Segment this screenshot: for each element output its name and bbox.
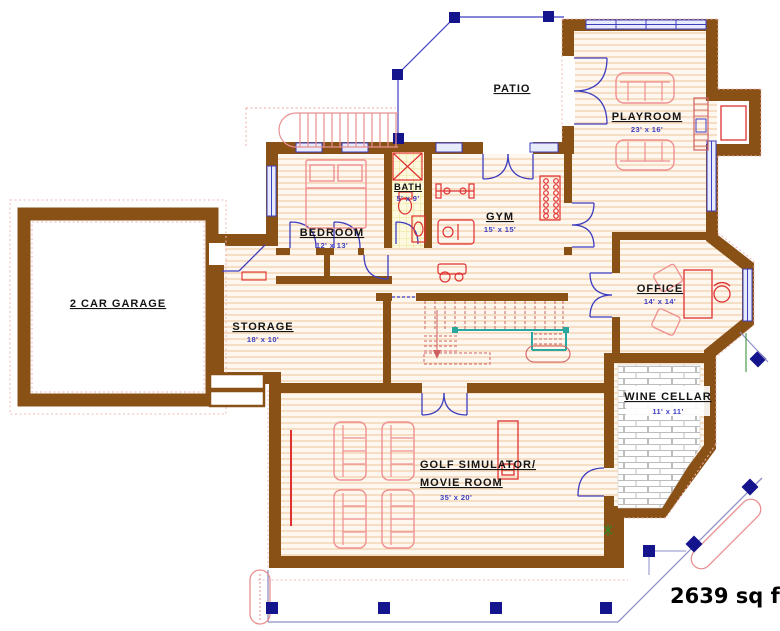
deck-post-diamond [742,479,759,496]
rail-post [563,327,569,333]
bath-dim: 5' x 9' [396,194,419,203]
deck-post [490,602,502,614]
office-dim: 14' x 14' [644,297,676,306]
playroom-dim: 23' x 16' [631,125,663,134]
deck-post [600,602,612,614]
patio-post [392,69,403,80]
total-area-label: 2639 sq ft [670,584,780,608]
wall-stairhall-west [383,301,391,389]
window-gym-north [436,143,462,152]
bedroom-dim: 12' x 13' [316,241,348,250]
wall-gym-east [564,148,572,203]
golf-label-line2: MOVIE ROOM [420,477,503,489]
rail-post [452,327,458,333]
garage-door-opening [209,243,225,265]
wall-closet-divider [324,255,330,276]
opening-patio-gym [483,141,533,154]
wall-gym-south [376,293,392,301]
wall-bedroom-south [358,248,364,255]
golf-dim: 35' x 20' [440,493,472,502]
wall-office-west [612,240,620,273]
bath-label: BATH [394,182,422,193]
fireplace-niche [717,101,749,144]
wall-closet-south [276,276,392,284]
deck-post [266,602,278,614]
patio-post [393,133,404,144]
wall-bedroom-bath [384,148,392,248]
wall-office-north [612,232,714,240]
patio-label: PATIO [494,83,531,95]
patio [392,11,564,144]
deck-post [643,545,655,557]
patio-post [543,11,554,22]
wall-bedroom-south [276,248,290,255]
gym-dim: 15' x 15' [484,225,516,234]
wall-golf-north [467,383,614,393]
wall-golf-north [275,383,422,393]
storage-label: STORAGE [232,321,293,333]
wall-office-west [612,317,620,353]
storage-dim: 18' x 10' [247,335,279,344]
golf-label-line1: GOLF SIMULATOR/ [420,459,536,471]
deck-post-diamond [686,536,703,553]
wine-cellar-dim: 11' x 11' [652,407,683,416]
opening-patio-playroom [562,56,575,126]
floor-plan-page: 2 CAR GARAGE STORAGE 18' x 10' BEDROOM 1… [0,0,780,631]
bedroom-label: BEDROOM [300,227,364,239]
wall-gym-south [416,293,568,301]
gym-label: GYM [486,211,514,223]
exterior-step [210,391,264,406]
office-label: OFFICE [637,283,683,295]
window-gym-north [530,143,558,152]
deck-post [378,602,390,614]
wall-winecellar-west [604,353,614,468]
garage-label: 2 CAR GARAGE [70,298,166,310]
wine-cellar-label: WINE CELLAR [624,391,711,403]
deck-post-diamond [750,351,767,368]
stair-treads [300,113,396,147]
patio-post [449,12,460,23]
patio-edge [398,17,564,141]
wall-winecellar-north [612,353,712,363]
wall-gym-east-stub [564,247,572,255]
playroom-label: PLAYROOM [612,111,683,123]
floor-plan-canvas: 2 CAR GARAGE STORAGE 18' x 10' BEDROOM 1… [0,0,780,631]
door-openings [483,56,575,154]
deck-stair-angled [687,495,765,573]
exterior-step [210,374,264,389]
